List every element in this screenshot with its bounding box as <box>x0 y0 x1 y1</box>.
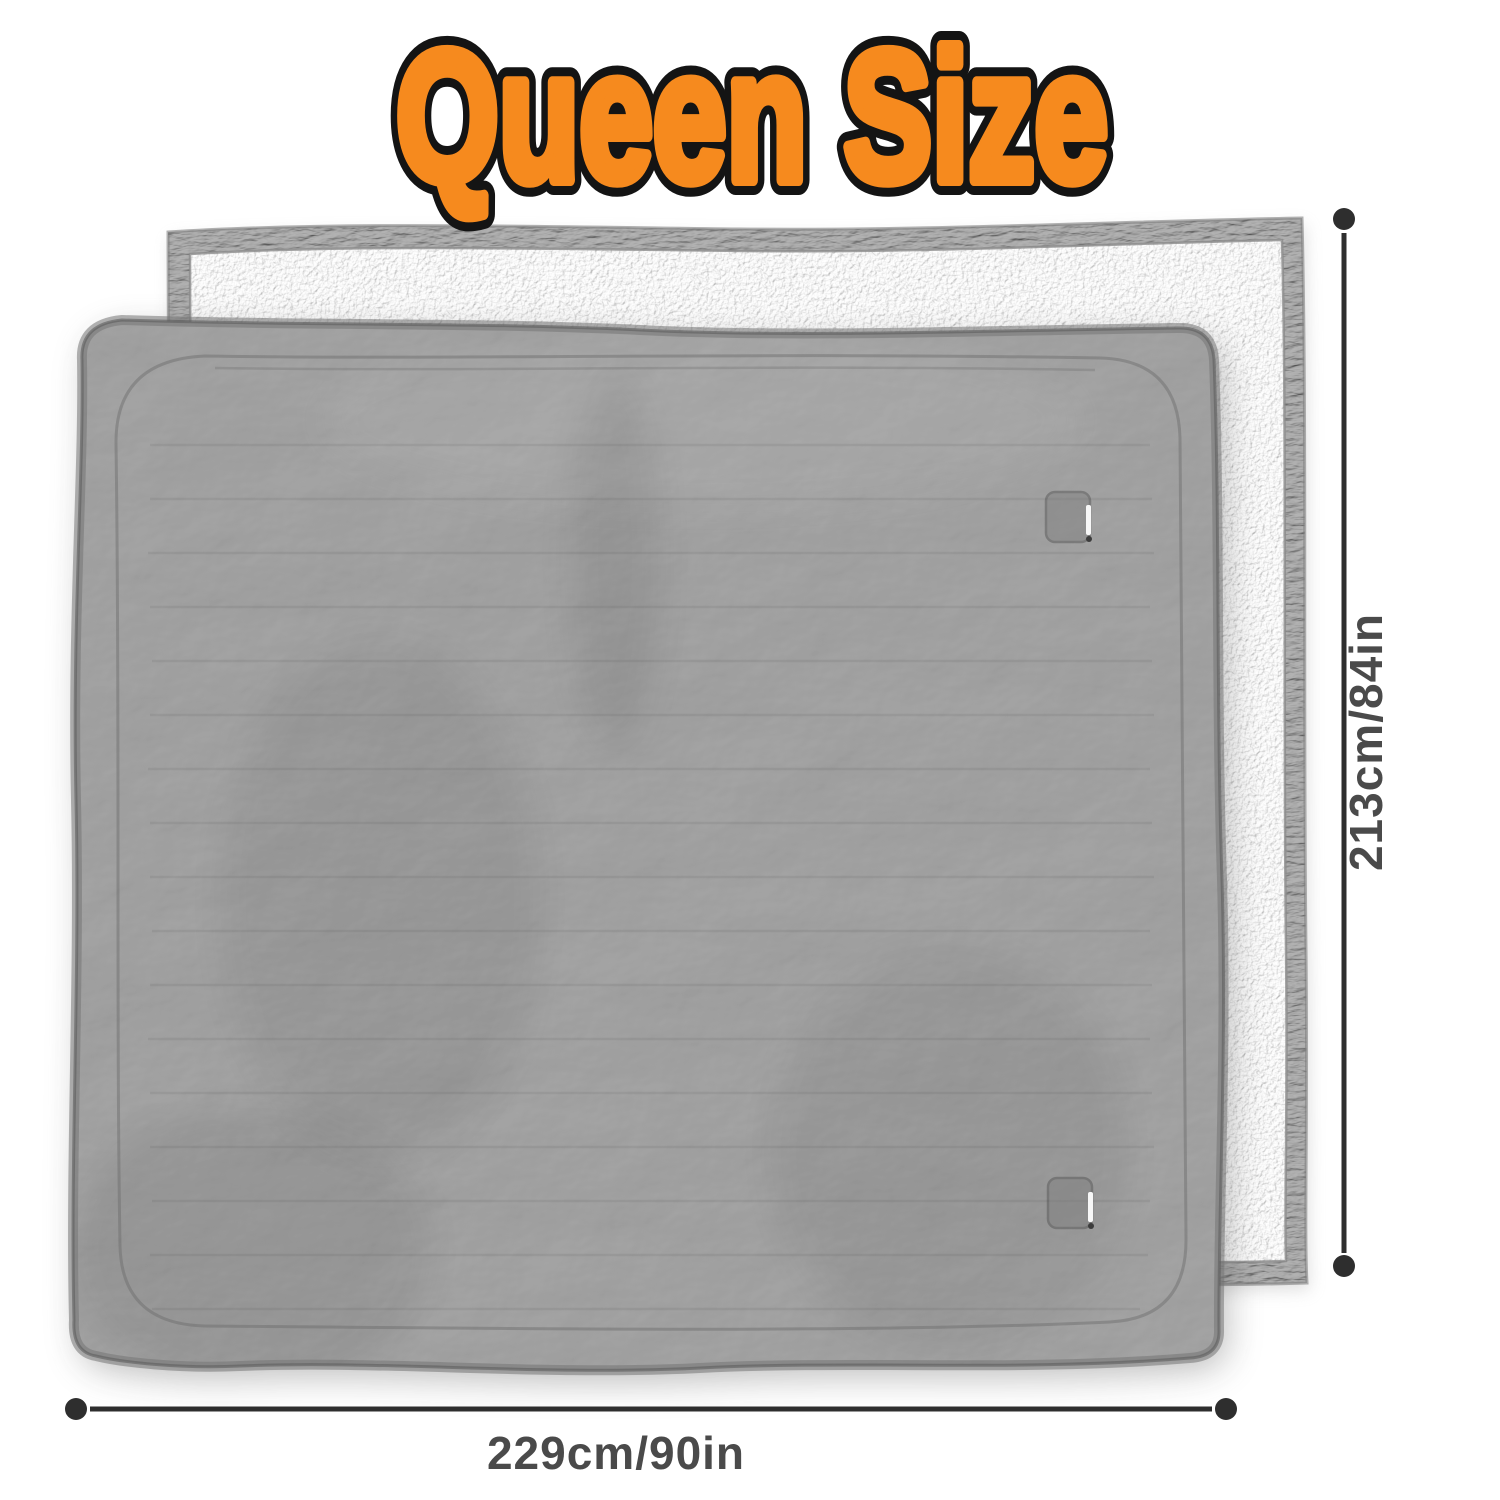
dimension-endpoint-dot <box>65 1398 87 1420</box>
power-connector-port-top <box>1046 492 1092 542</box>
page-title-text: Queen Size <box>396 14 1108 220</box>
port-slit <box>1088 1192 1093 1222</box>
port-slit <box>1086 505 1091 535</box>
page-title: Queen Size Queen Size <box>396 14 1108 220</box>
dimension-endpoint-dot <box>1215 1398 1237 1420</box>
dimension-endpoint-dot <box>1333 208 1355 230</box>
product-size-diagram: 213cm/84in 229cm/90in Queen Size Queen S… <box>0 0 1500 1500</box>
dimension-endpoint-dot <box>1333 1255 1355 1277</box>
height-dimension-label: 213cm/84in <box>1340 613 1392 871</box>
fold-shadow <box>70 1110 430 1390</box>
port-flap <box>1046 492 1090 542</box>
fold-shadow <box>220 640 540 1160</box>
height-dimension: 213cm/84in <box>1333 208 1392 1277</box>
port-pin <box>1086 536 1092 542</box>
diagram-canvas: 213cm/84in 229cm/90in Queen Size Queen S… <box>0 0 1500 1500</box>
width-dimension-label: 229cm/90in <box>487 1427 745 1479</box>
blanket-front-flannel <box>70 320 1231 1390</box>
port-flap <box>1048 1178 1092 1228</box>
power-connector-port-bottom <box>1048 1178 1094 1229</box>
fold-shadow <box>770 950 1130 1350</box>
port-pin <box>1088 1223 1094 1229</box>
width-dimension: 229cm/90in <box>65 1398 1237 1479</box>
